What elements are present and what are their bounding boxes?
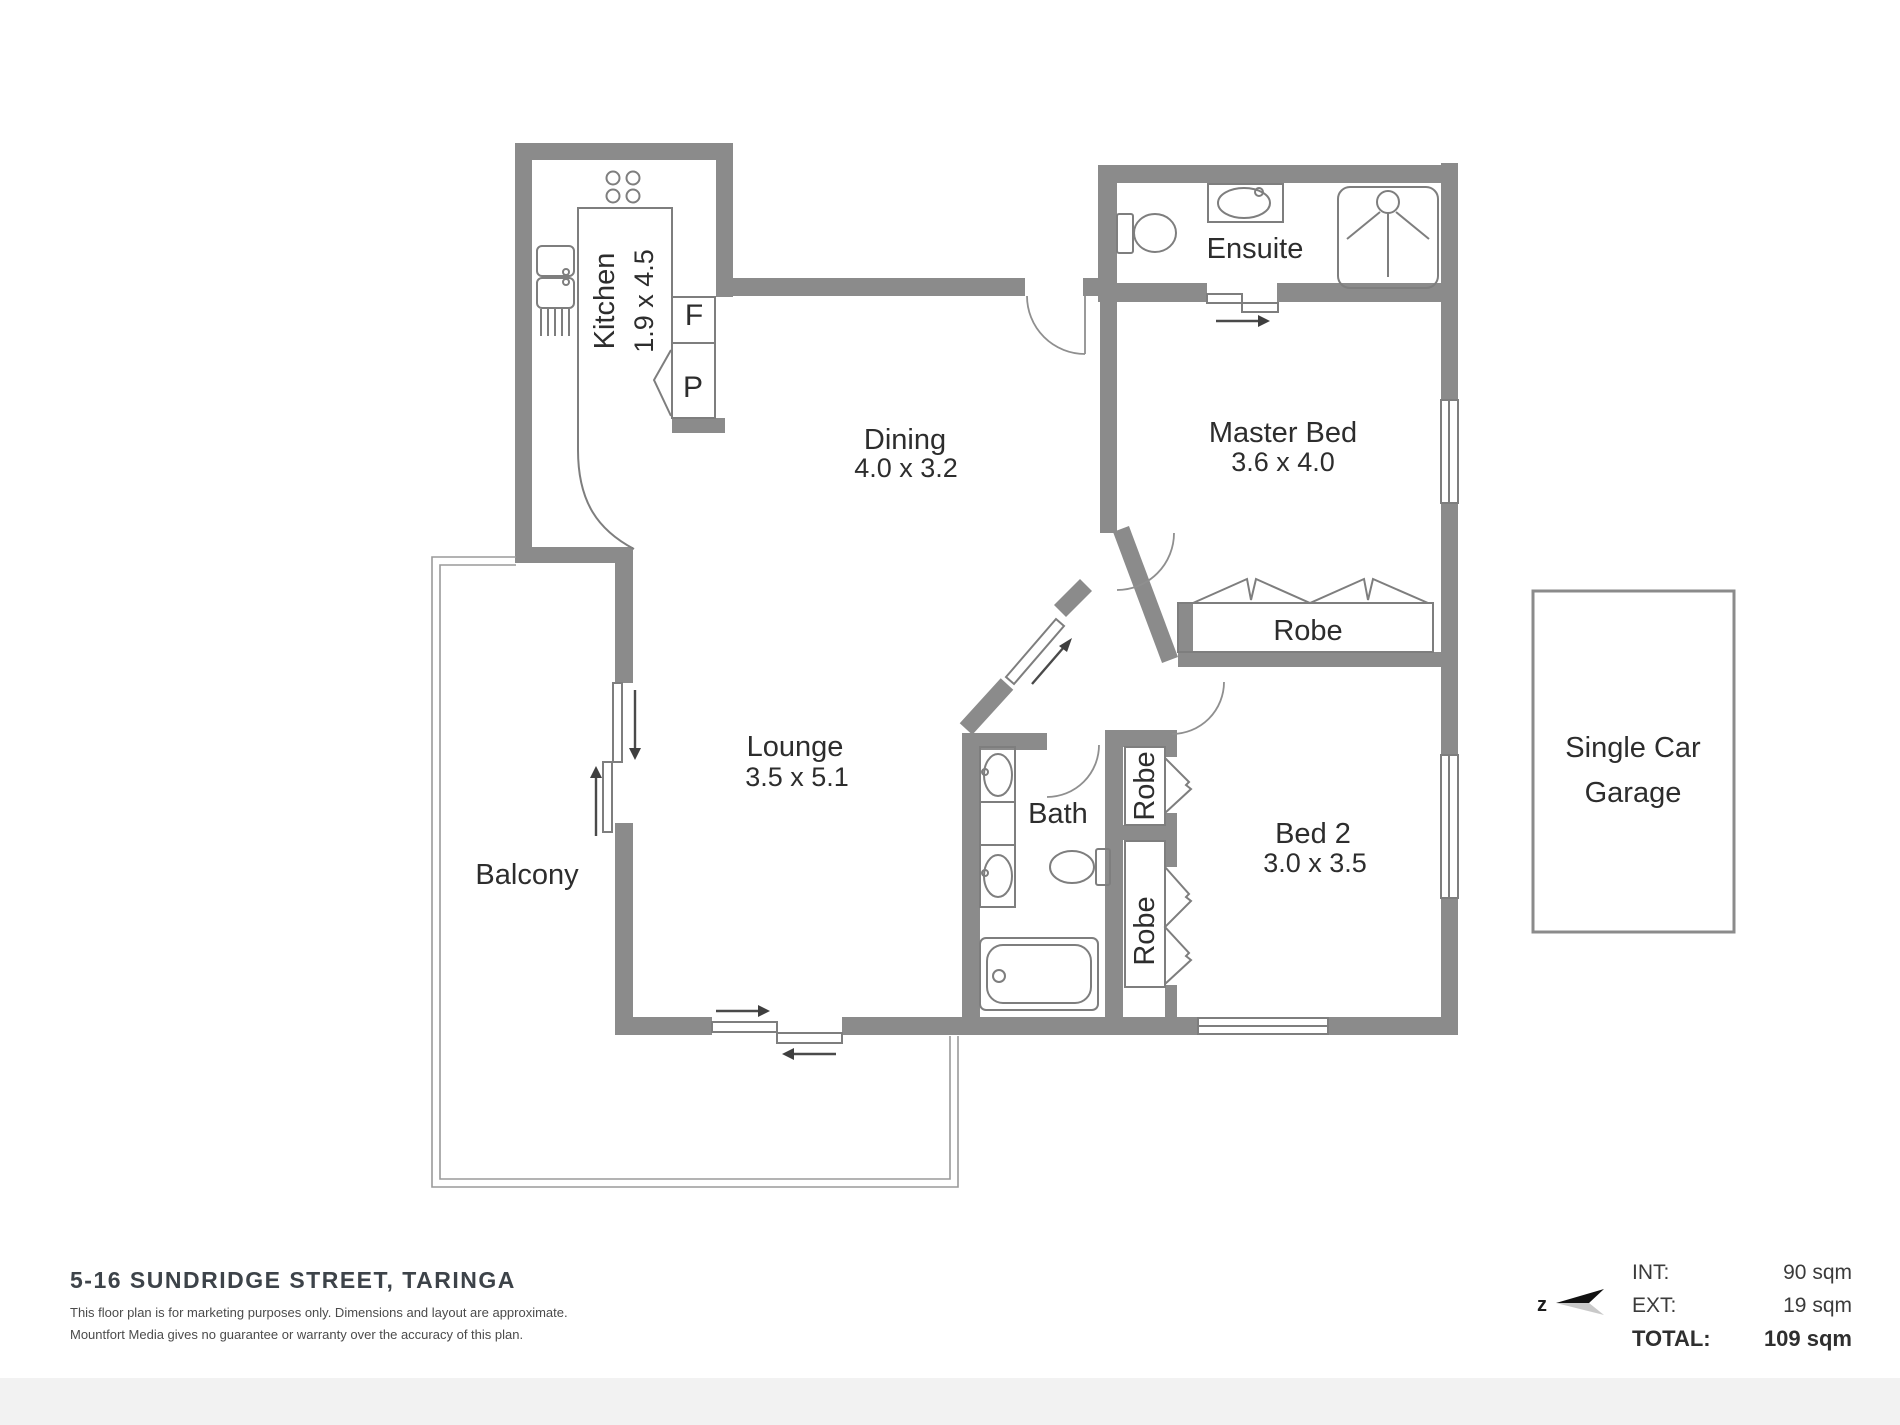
room-dims-master-bed: 3.6 x 4.0 [1231,447,1335,477]
robe2-bifold [1165,867,1191,984]
toilet-icon-bath [1050,849,1110,885]
north-arrow-icon: z [1537,1289,1604,1316]
sliding-door-balcony-bottom [712,1005,842,1060]
room-dims-lounge: 3.5 x 5.1 [745,762,849,792]
room-dims-kitchen: 1.9 x 4.5 [629,249,659,353]
stat-ext-value: 19 sqm [1783,1294,1852,1317]
sliding-door-hallway [1006,619,1072,684]
stove-icon [607,172,640,203]
label-fridge: F [685,299,703,332]
room-dims-bed2: 3.0 x 3.5 [1263,848,1367,878]
sliding-door-balcony-side [590,683,641,836]
stat-ext-label: EXT: [1632,1294,1676,1317]
pantry-door [654,350,671,416]
room-dims-dining: 4.0 x 3.2 [854,453,958,483]
stat-int-value: 90 sqm [1783,1261,1852,1284]
bath-fixtures [980,747,1110,1010]
window-bed2-bottom [1198,1018,1328,1034]
room-label-dining: Dining [864,424,946,456]
sliding-door-ensuite [1207,294,1278,327]
disclaimer-line2: Mountfort Media gives no guarantee or wa… [70,1327,523,1342]
room-label-bed2: Bed 2 [1275,818,1351,850]
disclaimer-line1: This floor plan is for marketing purpose… [70,1305,568,1320]
vanity-sink-icon-bath-1 [980,747,1015,802]
room-label-balcony: Balcony [475,859,579,891]
floor-plan-page: Kitchen 1.9 x 4.5 F P Dining 4.0 x 3.2 E… [0,0,1900,1425]
room-label-bath: Bath [1028,798,1088,830]
kitchen-drainer [541,309,569,336]
shower-icon [1338,187,1438,288]
windows [1198,400,1458,1034]
room-label-garage-1: Single Car [1565,732,1701,764]
label-pantry: P [683,371,703,404]
north-label: z [1537,1294,1547,1316]
door-bed2 [1172,682,1224,734]
floor-plan-svg: Kitchen 1.9 x 4.5 F P Dining 4.0 x 3.2 E… [0,0,1900,1425]
kitchen-fixtures [537,172,715,550]
stat-total-value: 109 sqm [1764,1326,1852,1351]
bath-cabinet [980,802,1015,845]
stat-total-label: TOTAL: [1632,1326,1711,1351]
room-label-garage-2: Garage [1585,777,1682,809]
room-label-master-bed: Master Bed [1209,417,1357,449]
vanity-sink-icon-ensuite [1208,184,1283,222]
toilet-icon-ensuite [1117,214,1176,253]
door-dining-entry [1027,296,1085,354]
room-label-ensuite: Ensuite [1207,233,1304,265]
stat-int-label: INT: [1632,1261,1669,1284]
room-label-master-robe: Robe [1273,615,1342,647]
master-robe-bifold [1193,579,1428,603]
vanity-sink-icon-bath-2 [980,845,1015,907]
address: 5-16 SUNDRIDGE STREET, TARINGA [70,1267,516,1293]
kitchen-sink-icon [537,246,574,308]
window-bed2 [1441,755,1458,898]
room-label-lounge: Lounge [747,731,844,763]
robe1-bifold [1165,758,1191,813]
room-label-robe2: Robe [1129,896,1161,965]
room-label-kitchen: Kitchen [589,253,621,350]
door-bath [1047,745,1099,797]
room-label-robe1: Robe [1129,751,1161,820]
bottom-band [0,1378,1900,1425]
window-master [1441,400,1458,503]
bathtub-icon [980,938,1098,1010]
